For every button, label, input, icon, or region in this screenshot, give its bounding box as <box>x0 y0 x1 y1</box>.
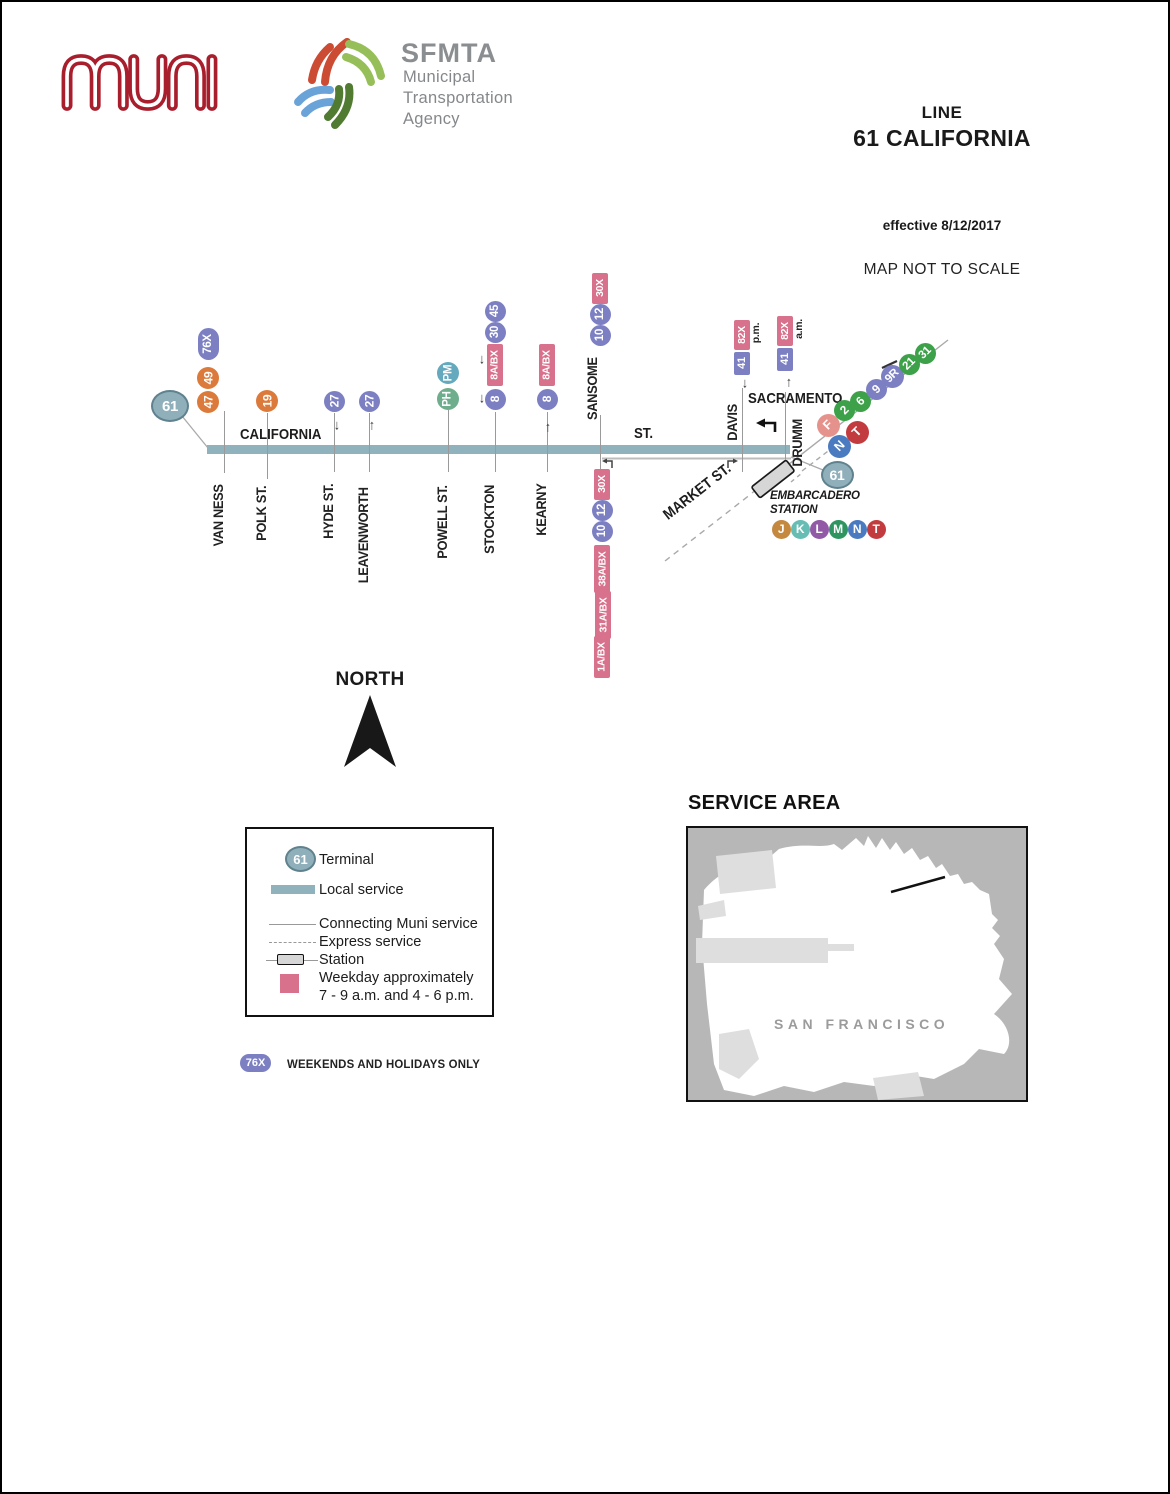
route-bullet: 47 <box>197 391 219 413</box>
street-label: HYDE ST. <box>320 484 336 539</box>
street-label: DAVIS <box>724 404 740 441</box>
route-bullet: PM <box>437 362 459 384</box>
footnote-text: WEEKENDS AND HOLIDAYS ONLY <box>287 1057 480 1071</box>
route-bullet: 31 <box>915 343 936 364</box>
one-way-down-arrow: ↓ <box>479 352 485 366</box>
route-bullet: 30X <box>594 469 610 500</box>
street-line <box>448 410 449 472</box>
legend-weekday-label-2: 7 - 9 a.m. and 4 - 6 p.m. <box>319 988 474 1004</box>
legend: 61 Terminal Local service Connecting Mun… <box>245 827 494 1017</box>
legend-local-line <box>271 885 315 894</box>
legend-connecting-label: Connecting Muni service <box>319 916 478 932</box>
legend-weekday-label-1: Weekday approximately <box>319 970 473 986</box>
footnote-76x-bullet: 76X <box>240 1054 271 1072</box>
route-bullet: PH <box>437 388 459 410</box>
street-line <box>495 412 496 472</box>
route-map-layer: VAN NESSPOLK ST.HYDE ST.LEAVENWORTHPOWEL… <box>2 2 1170 1494</box>
route-bullet: 41 <box>734 352 750 375</box>
route-bullet: 12 <box>592 500 613 521</box>
route-bullet: p.m. <box>750 320 762 346</box>
one-way-down-arrow: ↓ <box>334 418 340 432</box>
street-label: SANSOME <box>584 357 600 420</box>
route-bullet: 45 <box>485 301 506 322</box>
route-bullet: K <box>791 520 810 539</box>
route-bullet: 31A/BX <box>595 591 611 639</box>
route-bullet: 8A/BX <box>539 344 555 386</box>
route-bullet: 27 <box>359 391 380 412</box>
route-bullet: 61 <box>821 461 854 489</box>
street-label: POWELL ST. <box>434 485 450 558</box>
legend-local-label: Local service <box>319 882 404 898</box>
service-area-map <box>686 826 1028 1102</box>
street-label: STOCKTON <box>481 485 497 554</box>
route-bullet: 27 <box>324 391 345 412</box>
route-bullet: 19 <box>256 390 278 412</box>
street-line <box>742 388 743 472</box>
san-francisco-map <box>688 828 1026 1100</box>
route-bullet: T <box>867 520 886 539</box>
one-way-up-arrow: ↑ <box>369 418 375 432</box>
legend-express-label: Express service <box>319 934 421 950</box>
route-bullet: 82X <box>734 320 750 350</box>
street-label: POLK ST. <box>253 486 269 541</box>
route-bullet: 38A/BX <box>594 545 610 593</box>
route-bullet: L <box>810 520 829 539</box>
one-way-down-arrow: ↓ <box>479 391 485 405</box>
street-line <box>600 415 601 472</box>
street-label: VAN NESS <box>210 484 226 546</box>
route-bullet: T <box>846 421 869 444</box>
route-bullet: N <box>848 520 867 539</box>
route-bullet: M <box>829 520 848 539</box>
legend-connecting-line <box>269 924 316 925</box>
street-label: DRUMM <box>789 419 805 467</box>
route-bullet: 8 <box>537 389 558 410</box>
route-bullet: 61 <box>151 390 189 422</box>
route-bullet: 10 <box>590 325 611 346</box>
route-bullet: 30X <box>592 273 608 304</box>
one-way-up-arrow: ↑ <box>786 375 792 389</box>
route-bullet: 10 <box>592 521 613 542</box>
north-label: NORTH <box>332 669 408 691</box>
route-bullet: 8 <box>485 389 506 410</box>
route-bullet: 8A/BX <box>487 344 503 386</box>
legend-station-symbol <box>277 954 304 965</box>
street-line <box>224 411 225 473</box>
route-bullet: 12 <box>590 304 611 325</box>
legend-terminal-label: Terminal <box>319 852 374 868</box>
route-bullet: a.m. <box>793 316 805 342</box>
route-bullet: 30 <box>485 322 506 343</box>
street-label: LEAVENWORTH <box>355 487 371 583</box>
service-area-title: SERVICE AREA <box>688 792 841 815</box>
route-bullet: 41 <box>777 348 793 371</box>
street-line <box>267 413 268 479</box>
legend-station-label: Station <box>319 952 364 968</box>
route-bullet: 82X <box>777 316 793 346</box>
street-label: KEARNY <box>533 484 549 536</box>
one-way-up-arrow: ↑ <box>545 420 551 434</box>
legend-terminal-bullet: 61 <box>285 846 316 872</box>
page: SFMTA Municipal Transportation Agency LI… <box>0 0 1170 1494</box>
one-way-down-arrow: ↓ <box>742 376 748 390</box>
san-francisco-label: SAN FRANCISCO <box>774 1016 949 1032</box>
street-line <box>785 392 786 460</box>
route-bullet: 49 <box>197 367 219 389</box>
route-bullet: J <box>772 520 791 539</box>
legend-weekday-swatch <box>280 974 299 993</box>
route-bullet: 1A/BX <box>594 636 610 678</box>
route-bullet: 76X <box>198 328 219 360</box>
legend-express-line <box>269 942 316 943</box>
